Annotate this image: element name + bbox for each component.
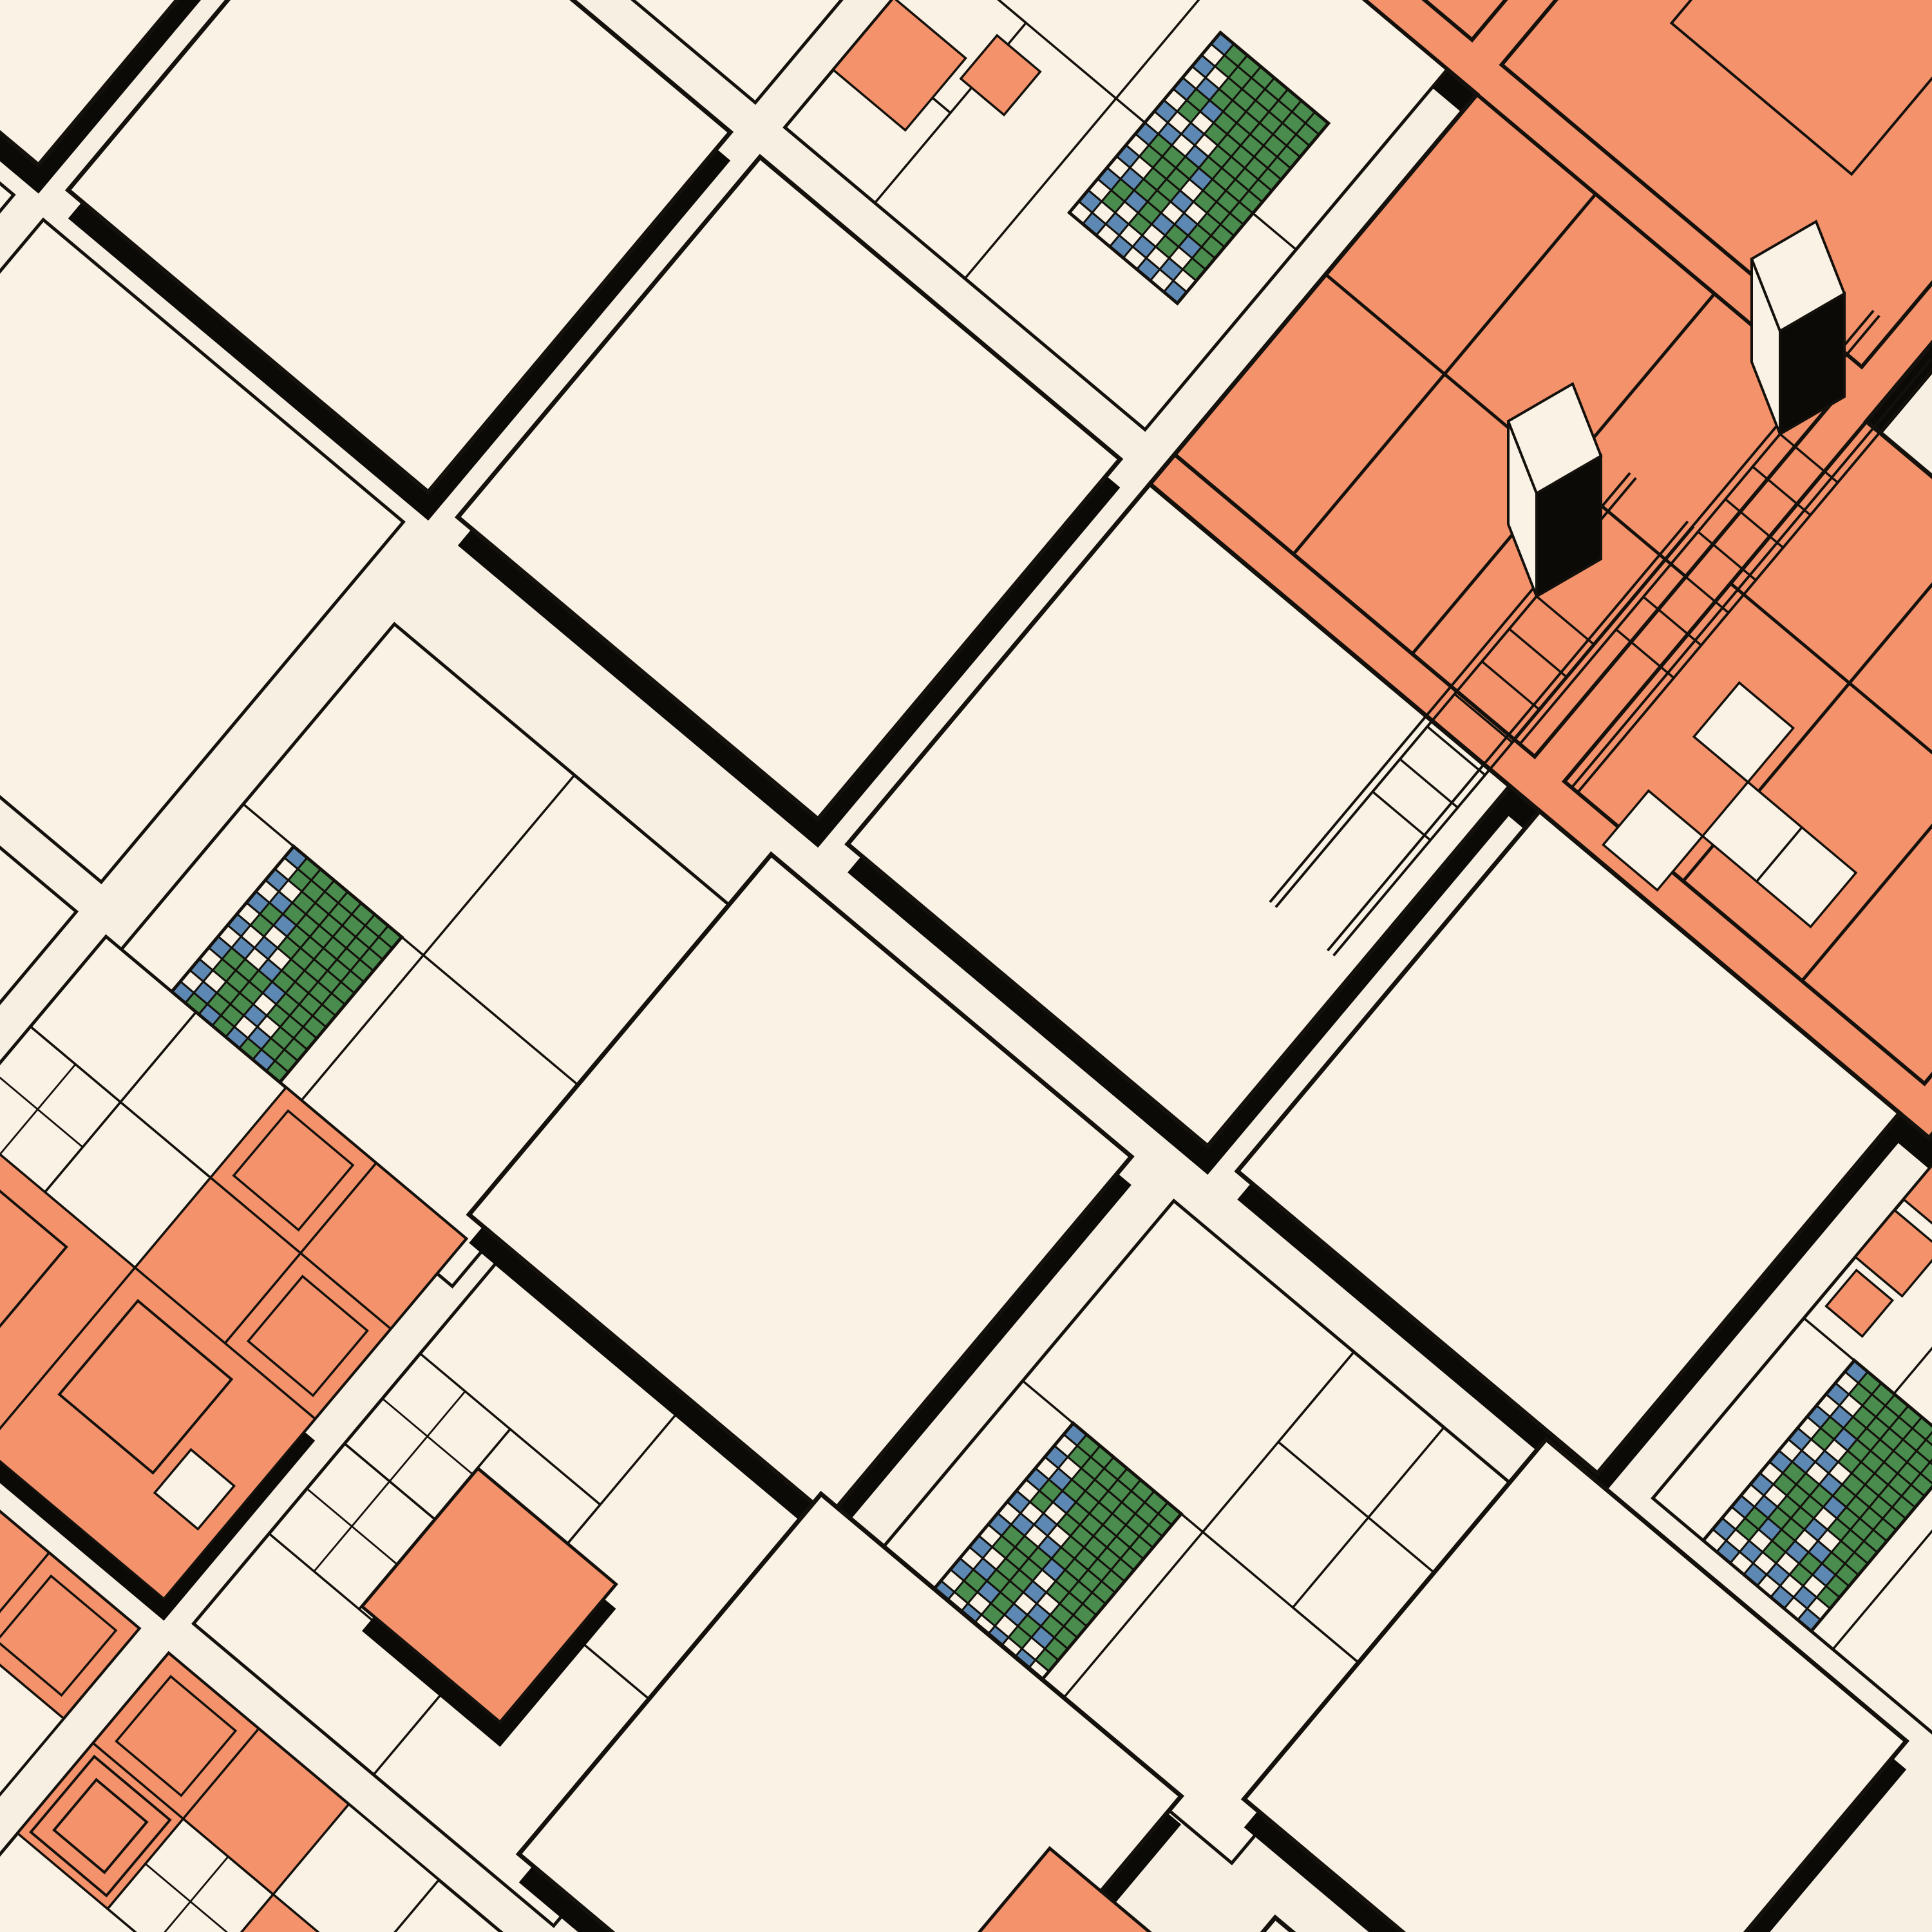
artwork-canvas bbox=[0, 0, 1932, 1932]
generative-artwork bbox=[0, 0, 1932, 1932]
